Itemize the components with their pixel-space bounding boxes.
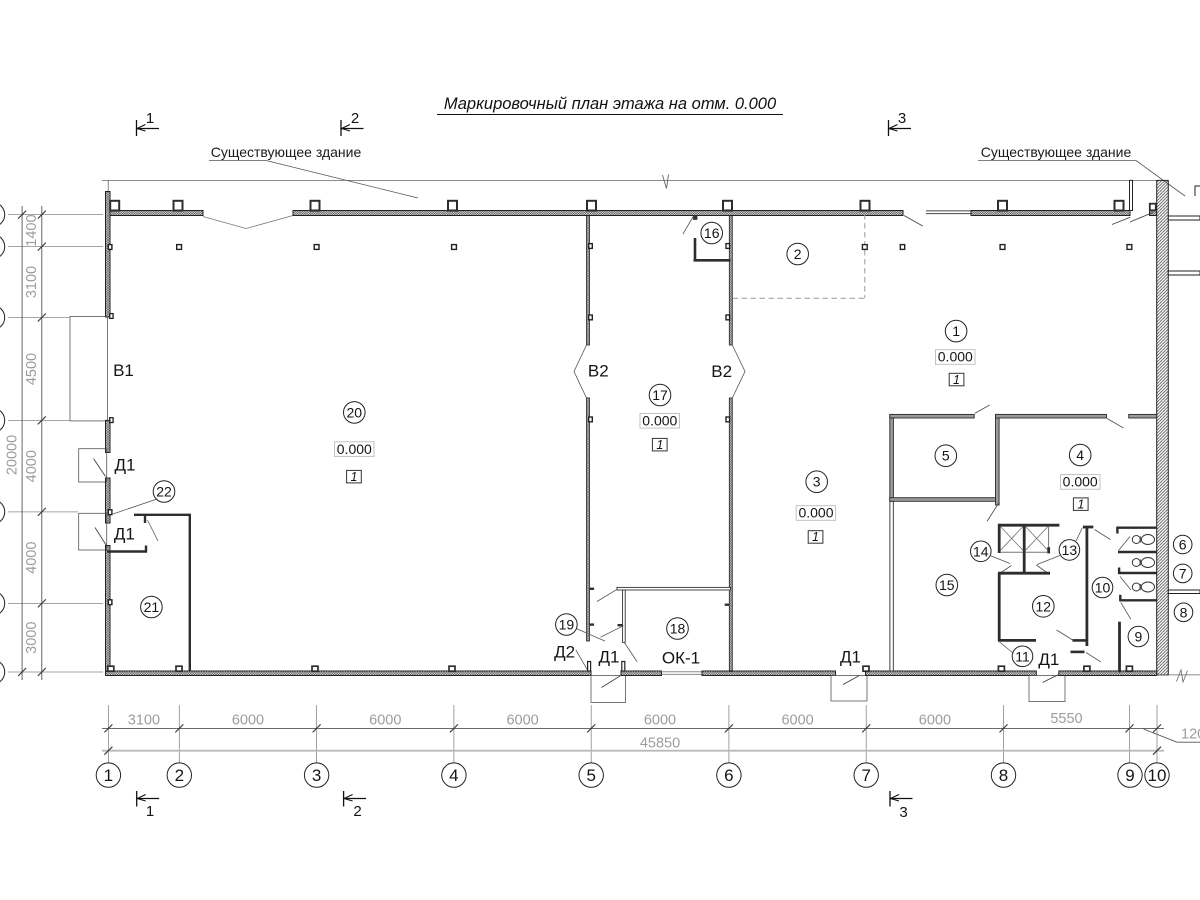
svg-text:14: 14 (973, 543, 989, 559)
svg-text:15: 15 (939, 577, 955, 593)
svg-text:0.000: 0.000 (938, 349, 973, 365)
svg-text:2: 2 (351, 110, 359, 127)
svg-text:4000: 4000 (24, 450, 40, 482)
svg-text:7: 7 (861, 766, 870, 785)
svg-text:6000: 6000 (644, 712, 676, 728)
svg-text:6000: 6000 (781, 712, 813, 728)
svg-text:Д1: Д1 (840, 648, 861, 667)
svg-text:В2: В2 (588, 362, 609, 381)
svg-text:20000: 20000 (5, 435, 21, 475)
svg-text:22: 22 (156, 484, 172, 500)
svg-text:6000: 6000 (369, 712, 401, 728)
svg-text:10: 10 (1148, 766, 1167, 785)
svg-text:Существующее здание: Существующее здание (981, 144, 1132, 160)
svg-text:Существующее здание: Существующее здание (211, 144, 362, 160)
svg-text:1: 1 (1077, 497, 1084, 511)
svg-text:2: 2 (794, 246, 802, 262)
svg-text:0.000: 0.000 (798, 505, 833, 521)
svg-text:6: 6 (724, 766, 733, 785)
svg-text:18: 18 (670, 621, 686, 637)
svg-text:16: 16 (704, 225, 720, 241)
svg-text:20: 20 (347, 404, 363, 420)
svg-text:3100: 3100 (24, 266, 40, 298)
svg-text:Д2: Д2 (554, 643, 575, 662)
svg-text:ОК-1: ОК-1 (662, 649, 700, 668)
svg-text:6: 6 (1179, 537, 1187, 553)
svg-text:3: 3 (898, 110, 906, 127)
svg-text:6000: 6000 (919, 712, 951, 728)
svg-text:4: 4 (449, 766, 458, 785)
svg-text:12: 12 (1036, 598, 1052, 614)
svg-text:8: 8 (1180, 604, 1188, 620)
svg-text:1: 1 (656, 438, 663, 452)
svg-text:5550: 5550 (1050, 711, 1082, 727)
svg-text:1200: 1200 (1181, 727, 1200, 743)
svg-text:1: 1 (351, 470, 358, 484)
svg-text:Д1: Д1 (599, 648, 620, 667)
svg-text:2: 2 (353, 803, 361, 820)
svg-text:0.000: 0.000 (642, 413, 677, 429)
svg-text:6000: 6000 (506, 712, 538, 728)
svg-text:3: 3 (312, 766, 321, 785)
svg-text:19: 19 (559, 617, 575, 633)
svg-text:13: 13 (1062, 542, 1078, 558)
svg-text:1: 1 (146, 803, 154, 820)
svg-text:8: 8 (999, 766, 1008, 785)
svg-text:21: 21 (144, 599, 160, 615)
svg-text:17: 17 (652, 387, 668, 403)
svg-text:1: 1 (953, 373, 960, 387)
svg-text:4500: 4500 (24, 353, 40, 385)
svg-text:Д1: Д1 (114, 525, 135, 544)
svg-text:Д1: Д1 (1038, 650, 1059, 669)
svg-text:1: 1 (952, 323, 960, 339)
svg-text:7: 7 (1179, 565, 1187, 581)
svg-text:3100: 3100 (128, 712, 160, 728)
svg-text:3000: 3000 (24, 622, 40, 654)
svg-text:В2: В2 (711, 362, 732, 381)
svg-text:9: 9 (1125, 766, 1134, 785)
svg-text:1: 1 (104, 766, 113, 785)
svg-text:11: 11 (1015, 648, 1030, 664)
svg-text:Д1: Д1 (115, 456, 136, 475)
svg-text:Маркировочный план этажа на от: Маркировочный план этажа на отм. 0.000 (444, 95, 777, 113)
svg-text:10: 10 (1095, 580, 1111, 596)
svg-text:1: 1 (146, 110, 154, 127)
svg-text:4: 4 (1076, 447, 1084, 463)
svg-text:В1: В1 (113, 361, 134, 380)
svg-text:0.000: 0.000 (1063, 474, 1098, 490)
svg-text:4000: 4000 (24, 542, 40, 574)
svg-text:6000: 6000 (232, 712, 264, 728)
svg-text:9: 9 (1135, 629, 1143, 645)
svg-text:3: 3 (813, 474, 821, 490)
svg-text:2: 2 (175, 766, 184, 785)
svg-text:45850: 45850 (640, 736, 680, 752)
svg-text:3: 3 (899, 804, 907, 821)
svg-text:5: 5 (942, 448, 950, 464)
svg-text:1: 1 (812, 530, 819, 544)
svg-text:0.000: 0.000 (337, 441, 372, 457)
svg-text:5: 5 (586, 766, 595, 785)
svg-text:1400: 1400 (24, 214, 40, 246)
